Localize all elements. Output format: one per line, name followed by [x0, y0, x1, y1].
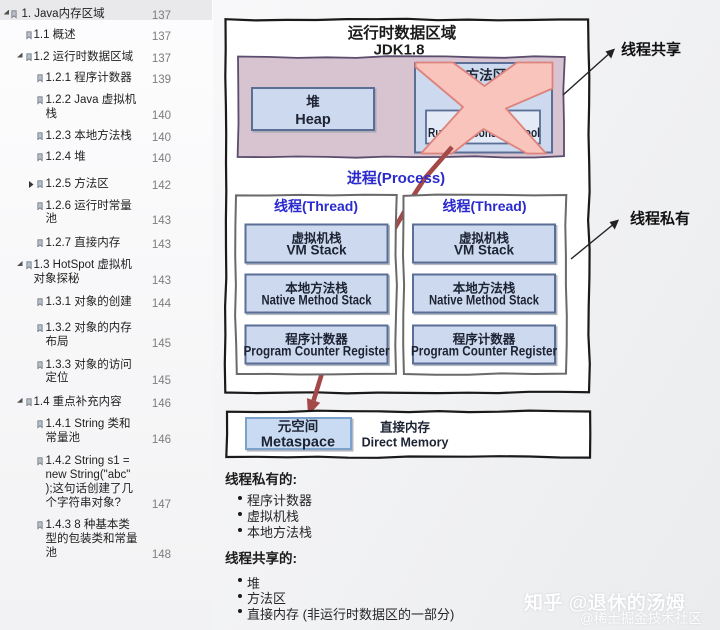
svg-text:Metaspace: Metaspace [261, 435, 335, 451]
svg-text:直接内存: 直接内存 [380, 420, 431, 435]
svg-text:Heap: Heap [295, 112, 331, 128]
svg-text:线程共享: 线程共享 [621, 41, 681, 59]
svg-text:线程(Thread): 线程(Thread) [443, 198, 527, 214]
svg-text:Program Counter Register: Program Counter Register [411, 344, 558, 359]
svg-text:运行时数据区域: 运行时数据区域 [348, 23, 457, 42]
svg-text:进程(Process): 进程(Process) [347, 170, 445, 187]
svg-text:Native Method Stack: Native Method Stack [262, 293, 372, 308]
svg-text:Native Method Stack: Native Method Stack [429, 293, 539, 308]
svg-text:堆: 堆 [306, 94, 320, 110]
svg-text:VM Stack: VM Stack [454, 243, 515, 258]
svg-text:线程(Thread): 线程(Thread) [274, 198, 358, 214]
svg-text:Direct Memory: Direct Memory [362, 436, 449, 450]
svg-text:元空间: 元空间 [278, 418, 319, 434]
svg-text:线程私有: 线程私有 [630, 210, 690, 228]
svg-text:VM Stack: VM Stack [286, 243, 347, 258]
svg-text:Program Counter Register: Program Counter Register [244, 344, 391, 359]
